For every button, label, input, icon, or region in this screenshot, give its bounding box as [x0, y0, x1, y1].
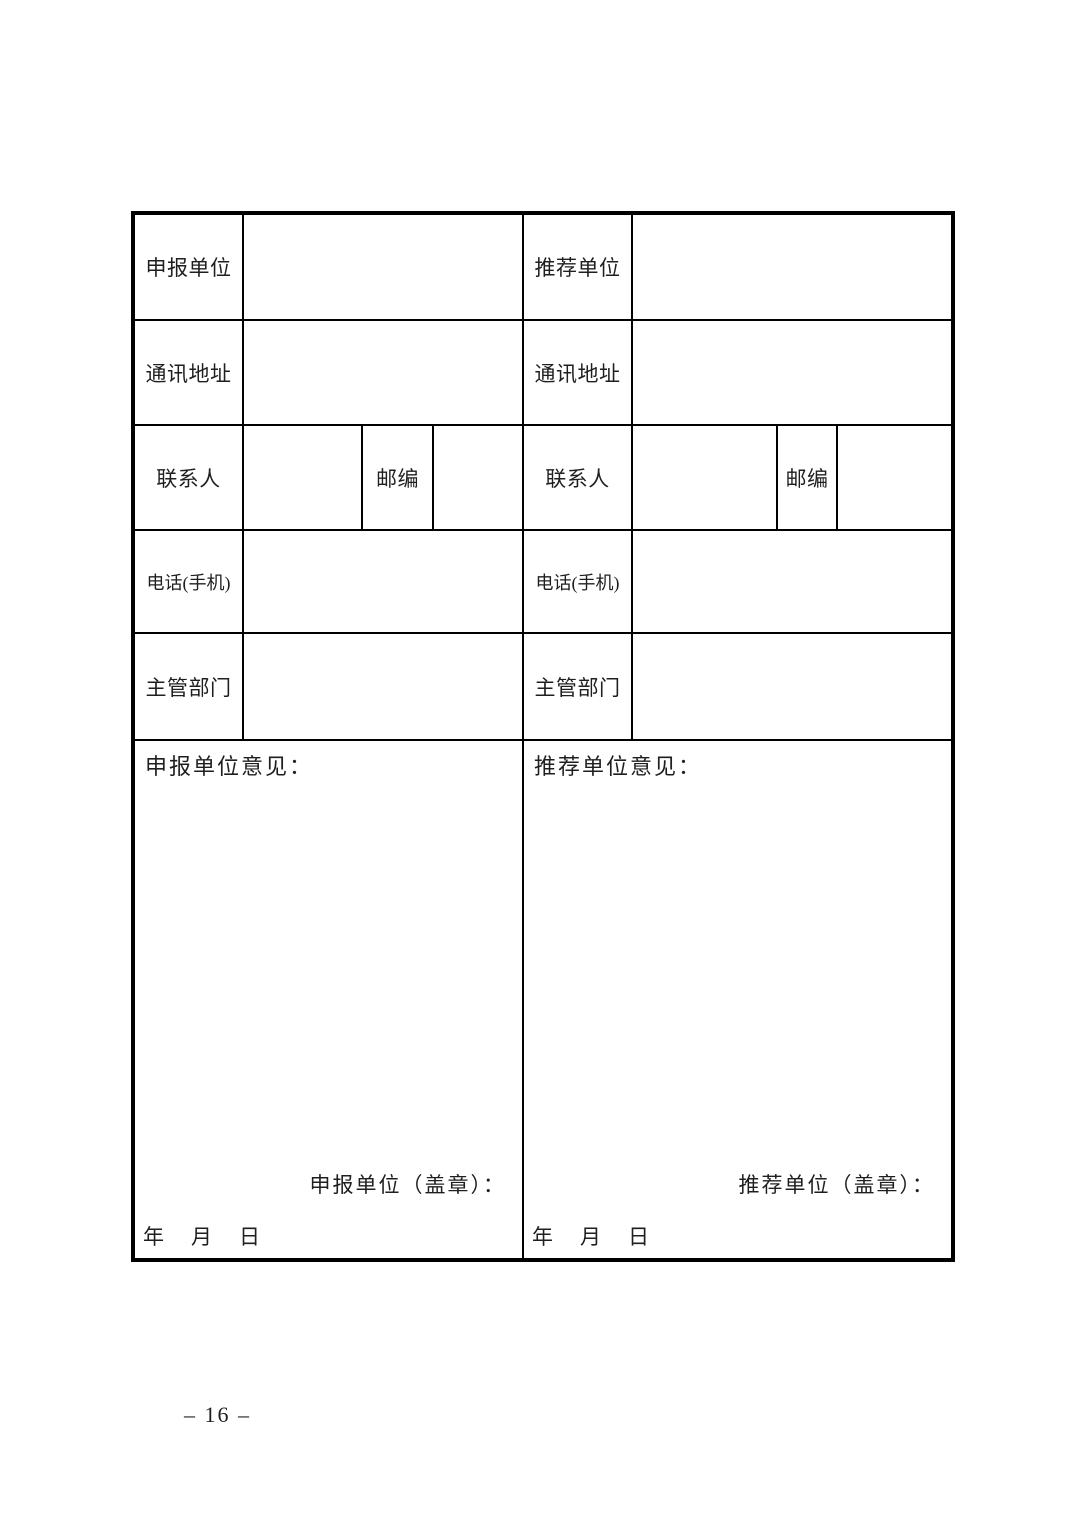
document-page: 申报单位 推荐单位 通讯地址 通讯地址 联系人 邮编 联系人 邮编 电话(手机)… [0, 0, 1080, 1527]
recommending-unit-opinion-box: 推荐单位意见： 推荐单位（盖章）： 年 月 日 [524, 741, 951, 1257]
row-address: 通讯地址 通讯地址 [133, 320, 953, 425]
phone-value-cell-left [243, 530, 523, 633]
recommending-unit-opinion-label: 推荐单位意见： [534, 749, 941, 781]
row-unit: 申报单位 推荐单位 [133, 213, 953, 320]
address-value-cell-right [632, 320, 953, 425]
contact-person-label-right: 联系人 [523, 425, 632, 530]
department-value-cell-left [243, 633, 523, 740]
phone-value-cell-right [632, 530, 953, 633]
recommending-unit-label: 推荐单位 [523, 213, 632, 320]
postcode-label-right: 邮编 [777, 425, 837, 530]
postcode-value-cell-left [433, 425, 523, 530]
contact-person-value-cell-right [632, 425, 777, 530]
postcode-value-cell-right [837, 425, 953, 530]
address-label-left: 通讯地址 [133, 320, 243, 425]
department-value-cell-right [632, 633, 953, 740]
address-label-right: 通讯地址 [523, 320, 632, 425]
recommending-unit-value-cell [632, 213, 953, 320]
declaring-unit-label: 申报单位 [133, 213, 243, 320]
phone-label-left: 电话(手机) [133, 530, 243, 633]
declaring-unit-opinion-cell: 申报单位意见： 申报单位（盖章）： 年 月 日 [133, 740, 523, 1260]
contact-person-value-cell-left [243, 425, 362, 530]
declaring-unit-opinion-label: 申报单位意见： [145, 749, 512, 781]
department-label-left: 主管部门 [133, 633, 243, 740]
page-number: – 16 – [184, 1402, 251, 1428]
phone-label-right: 电话(手机) [523, 530, 632, 633]
application-form-table: 申报单位 推荐单位 通讯地址 通讯地址 联系人 邮编 联系人 邮编 电话(手机)… [131, 211, 955, 1262]
row-department: 主管部门 主管部门 [133, 633, 953, 740]
row-phone: 电话(手机) 电话(手机) [133, 530, 953, 633]
recommending-unit-seal-label: 推荐单位（盖章）： [739, 1169, 936, 1199]
row-contact-postcode: 联系人 邮编 联系人 邮编 [133, 425, 953, 530]
row-opinions: 申报单位意见： 申报单位（盖章）： 年 月 日 推荐单位意见： 推荐单位（盖章）… [133, 740, 953, 1260]
department-label-right: 主管部门 [523, 633, 632, 740]
declaring-unit-opinion-box: 申报单位意见： 申报单位（盖章）： 年 月 日 [135, 741, 522, 1257]
address-value-cell-left [243, 320, 523, 425]
recommending-unit-opinion-cell: 推荐单位意见： 推荐单位（盖章）： 年 月 日 [523, 740, 953, 1260]
recommending-unit-date-line: 年 月 日 [532, 1221, 652, 1251]
declaring-unit-date-line: 年 月 日 [143, 1221, 263, 1251]
postcode-label-left: 邮编 [362, 425, 433, 530]
contact-person-label-left: 联系人 [133, 425, 243, 530]
declaring-unit-value-cell [243, 213, 523, 320]
declaring-unit-seal-label: 申报单位（盖章）： [310, 1169, 507, 1199]
